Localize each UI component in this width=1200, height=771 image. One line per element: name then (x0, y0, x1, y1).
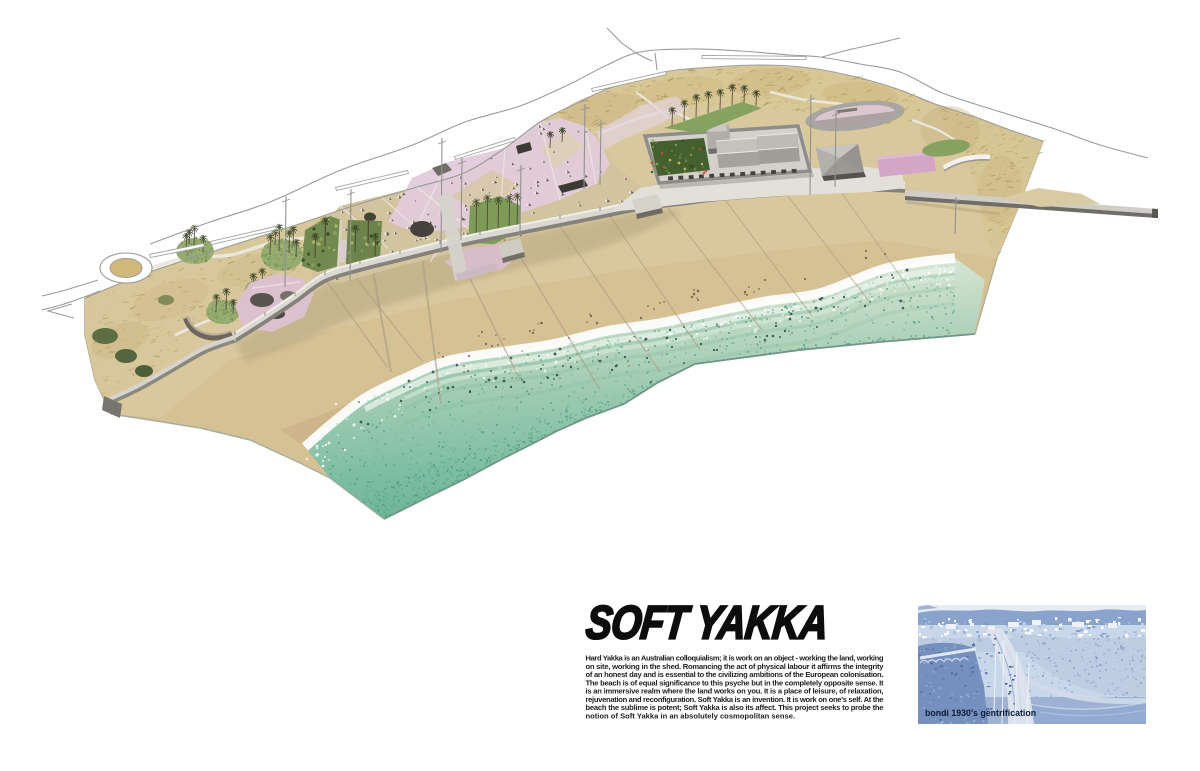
svg-text:bondi 1930's gentrification: bondi 1930's gentrification (925, 708, 1036, 718)
svg-text:SOFT YAKKA: SOFT YAKKA (584, 596, 831, 649)
svg-text:notion of Soft Yakka in an abs: notion of Soft Yakka in an absolutely co… (586, 712, 796, 721)
